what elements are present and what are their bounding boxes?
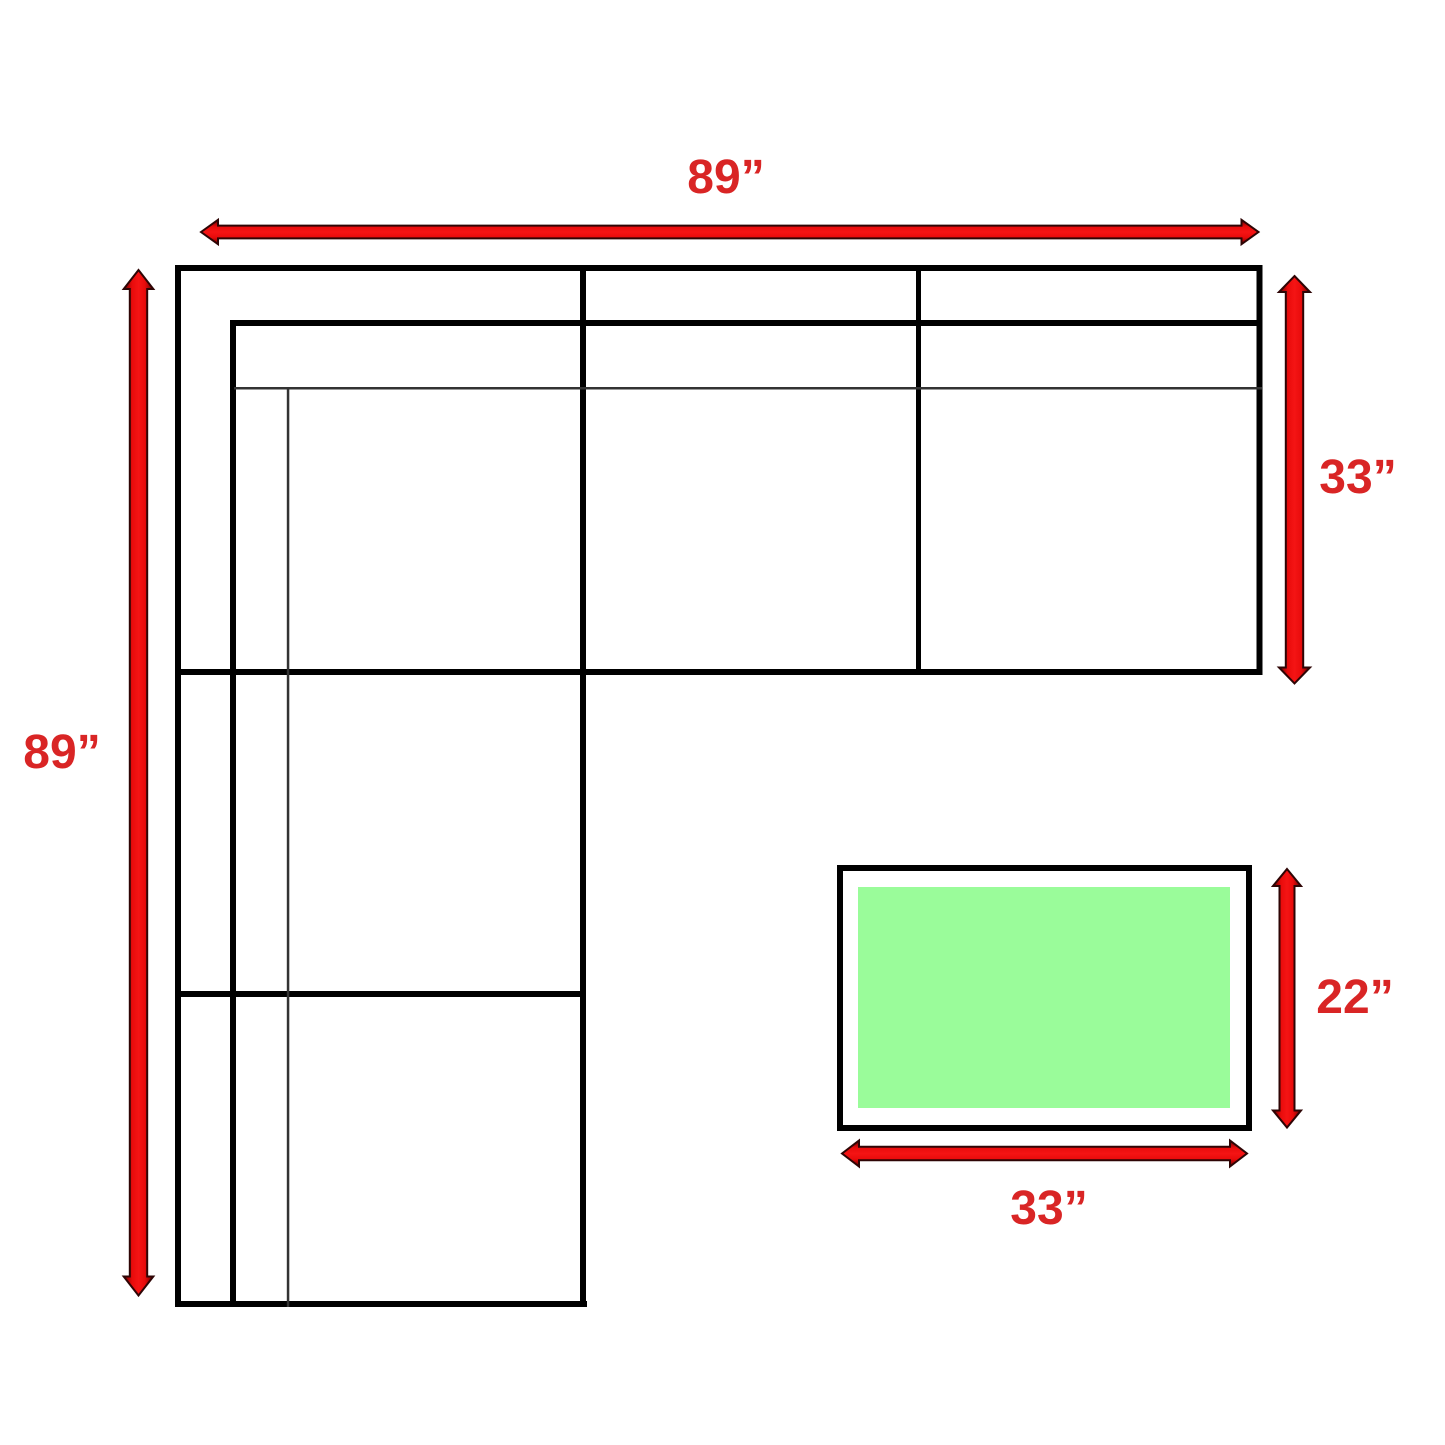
svg-text:33”: 33” (1319, 451, 1396, 504)
svg-text:22”: 22” (1316, 971, 1393, 1024)
svg-text:89”: 89” (687, 151, 764, 204)
svg-text:89”: 89” (23, 726, 100, 779)
svg-text:33”: 33” (1010, 1182, 1087, 1235)
